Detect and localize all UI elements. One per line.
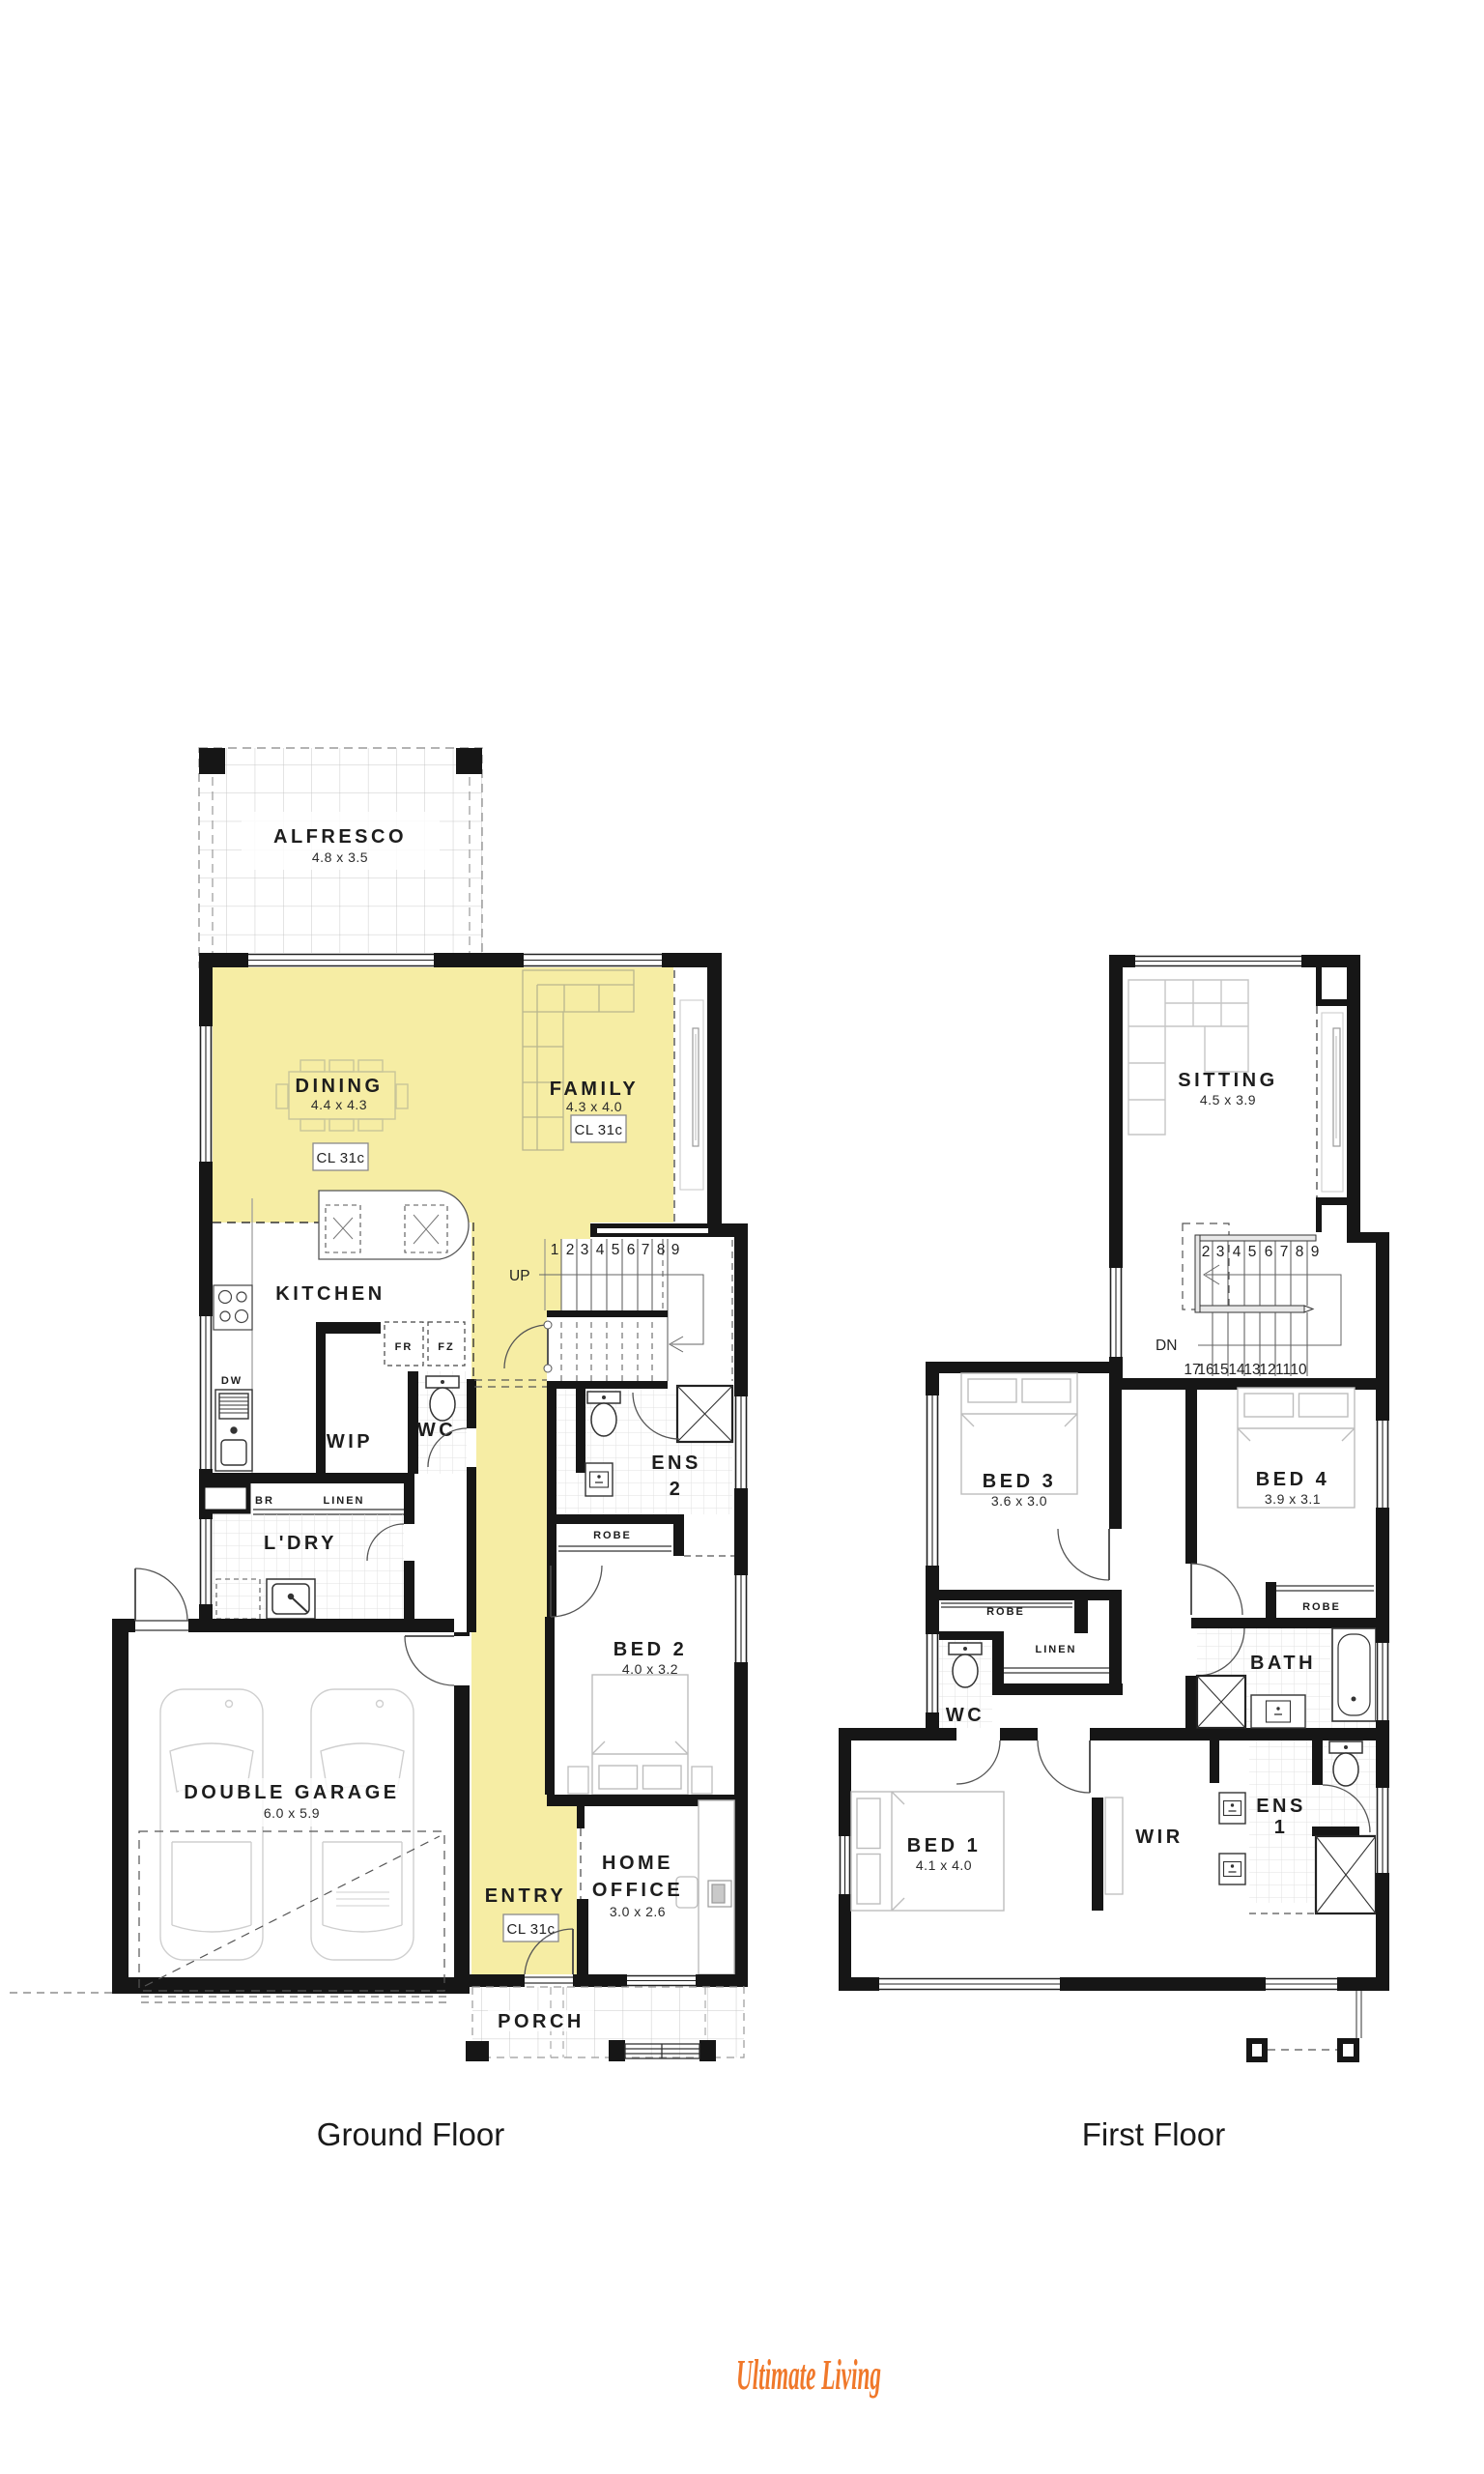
svg-text:6: 6 bbox=[627, 1242, 636, 1258]
svg-text:BED 3: BED 3 bbox=[983, 1471, 1056, 1492]
svg-text:3.0 x 2.6: 3.0 x 2.6 bbox=[610, 1904, 666, 1919]
svg-text:2: 2 bbox=[566, 1242, 575, 1258]
svg-text:2: 2 bbox=[670, 1479, 684, 1500]
svg-text:BR: BR bbox=[255, 1495, 274, 1507]
svg-text:L'DRY: L'DRY bbox=[264, 1533, 337, 1554]
svg-text:WIR: WIR bbox=[1135, 1827, 1183, 1848]
svg-text:WC: WC bbox=[946, 1705, 985, 1726]
svg-text:ENS: ENS bbox=[1256, 1796, 1306, 1817]
svg-text:10: 10 bbox=[1290, 1362, 1307, 1378]
svg-text:13: 13 bbox=[1243, 1362, 1260, 1378]
svg-text:6.0 x 5.9: 6.0 x 5.9 bbox=[264, 1805, 320, 1821]
svg-text:4.5 x 3.9: 4.5 x 3.9 bbox=[1200, 1092, 1256, 1108]
svg-text:BED 2: BED 2 bbox=[614, 1639, 687, 1660]
svg-text:Ultimate Living: Ultimate Living bbox=[736, 2351, 881, 2399]
svg-text:UP: UP bbox=[509, 1268, 530, 1284]
svg-text:DINING: DINING bbox=[296, 1076, 384, 1097]
svg-text:3.9 x 3.1: 3.9 x 3.1 bbox=[1265, 1491, 1321, 1507]
svg-text:4.4 x 4.3: 4.4 x 4.3 bbox=[311, 1097, 367, 1112]
svg-text:SITTING: SITTING bbox=[1178, 1070, 1277, 1091]
svg-text:DN: DN bbox=[1156, 1338, 1177, 1354]
svg-text:4.8 x 3.5: 4.8 x 3.5 bbox=[312, 849, 368, 865]
svg-text:9: 9 bbox=[1311, 1244, 1320, 1260]
svg-text:LINEN: LINEN bbox=[324, 1495, 365, 1507]
svg-text:BATH: BATH bbox=[1250, 1653, 1316, 1674]
svg-text:ROBE: ROBE bbox=[986, 1606, 1025, 1618]
svg-text:CL 31c: CL 31c bbox=[317, 1150, 365, 1166]
svg-text:3: 3 bbox=[581, 1242, 589, 1258]
svg-text:3.6 x 3.0: 3.6 x 3.0 bbox=[991, 1493, 1047, 1509]
svg-text:4.1 x 4.0: 4.1 x 4.0 bbox=[916, 1857, 972, 1873]
svg-text:5: 5 bbox=[1248, 1244, 1257, 1260]
svg-text:7: 7 bbox=[642, 1242, 650, 1258]
svg-text:PORCH: PORCH bbox=[498, 2011, 585, 2032]
svg-text:FZ: FZ bbox=[438, 1341, 454, 1353]
svg-text:ROBE: ROBE bbox=[593, 1530, 632, 1541]
svg-text:CL 31c: CL 31c bbox=[575, 1122, 623, 1138]
svg-text:4: 4 bbox=[1233, 1244, 1241, 1260]
svg-text:4.0 x 3.2: 4.0 x 3.2 bbox=[622, 1661, 678, 1677]
svg-text:8: 8 bbox=[657, 1242, 666, 1258]
svg-text:1: 1 bbox=[551, 1242, 559, 1258]
svg-text:HOME: HOME bbox=[602, 1853, 673, 1874]
svg-text:First Floor: First Floor bbox=[1082, 2116, 1226, 2152]
svg-text:ALFRESCO: ALFRESCO bbox=[273, 826, 407, 848]
svg-text:4: 4 bbox=[596, 1242, 605, 1258]
svg-text:BED 1: BED 1 bbox=[907, 1835, 981, 1856]
svg-text:4.3 x 4.0: 4.3 x 4.0 bbox=[566, 1099, 622, 1114]
svg-text:DOUBLE GARAGE: DOUBLE GARAGE bbox=[184, 1782, 399, 1803]
svg-text:7: 7 bbox=[1280, 1244, 1289, 1260]
svg-text:WIP: WIP bbox=[327, 1431, 373, 1453]
svg-text:Ground Floor: Ground Floor bbox=[317, 2116, 504, 2152]
svg-text:WC: WC bbox=[417, 1420, 456, 1441]
svg-text:FAMILY: FAMILY bbox=[550, 1079, 640, 1100]
svg-text:15: 15 bbox=[1212, 1362, 1228, 1378]
svg-text:2: 2 bbox=[1202, 1244, 1211, 1260]
svg-text:1: 1 bbox=[1274, 1817, 1289, 1838]
svg-text:ENTRY: ENTRY bbox=[485, 1885, 567, 1907]
svg-text:5: 5 bbox=[612, 1242, 620, 1258]
svg-text:14: 14 bbox=[1228, 1362, 1245, 1378]
svg-text:8: 8 bbox=[1296, 1244, 1304, 1260]
svg-text:DW: DW bbox=[221, 1375, 243, 1387]
svg-text:ENS: ENS bbox=[651, 1453, 701, 1474]
svg-text:9: 9 bbox=[671, 1242, 680, 1258]
svg-text:FR: FR bbox=[395, 1341, 414, 1353]
svg-text:OFFICE: OFFICE bbox=[592, 1880, 683, 1901]
svg-text:6: 6 bbox=[1265, 1244, 1273, 1260]
svg-text:BED 4: BED 4 bbox=[1256, 1469, 1329, 1490]
svg-text:12: 12 bbox=[1259, 1362, 1275, 1378]
svg-text:KITCHEN: KITCHEN bbox=[275, 1283, 385, 1305]
svg-text:11: 11 bbox=[1275, 1362, 1291, 1378]
svg-text:LINEN: LINEN bbox=[1036, 1644, 1077, 1655]
svg-text:3: 3 bbox=[1216, 1244, 1225, 1260]
svg-text:ROBE: ROBE bbox=[1302, 1601, 1341, 1613]
